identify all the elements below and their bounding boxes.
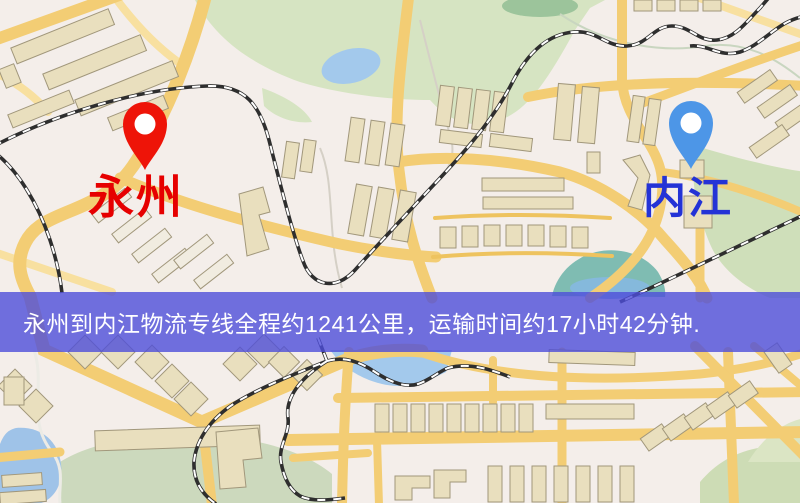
destination-city-label: 内江 [643, 178, 733, 221]
route-info-banner: 永州到内江物流专线全程约1241公里，运输时间约17小时42分钟. [0, 292, 800, 352]
route-info-text: 永州到内江物流专线全程约1241公里，运输时间约17小时42分钟. [0, 305, 700, 339]
destination-pin-icon[interactable] [666, 98, 716, 172]
logistics-route-map-screenshot: 永州 内江 永州到内江物流专线全程约1241公里，运输时间约17小时42分钟. [0, 0, 800, 503]
map-background [0, 0, 800, 503]
origin-city-label: 永州 [88, 174, 184, 220]
origin-pin-icon[interactable] [120, 99, 170, 173]
